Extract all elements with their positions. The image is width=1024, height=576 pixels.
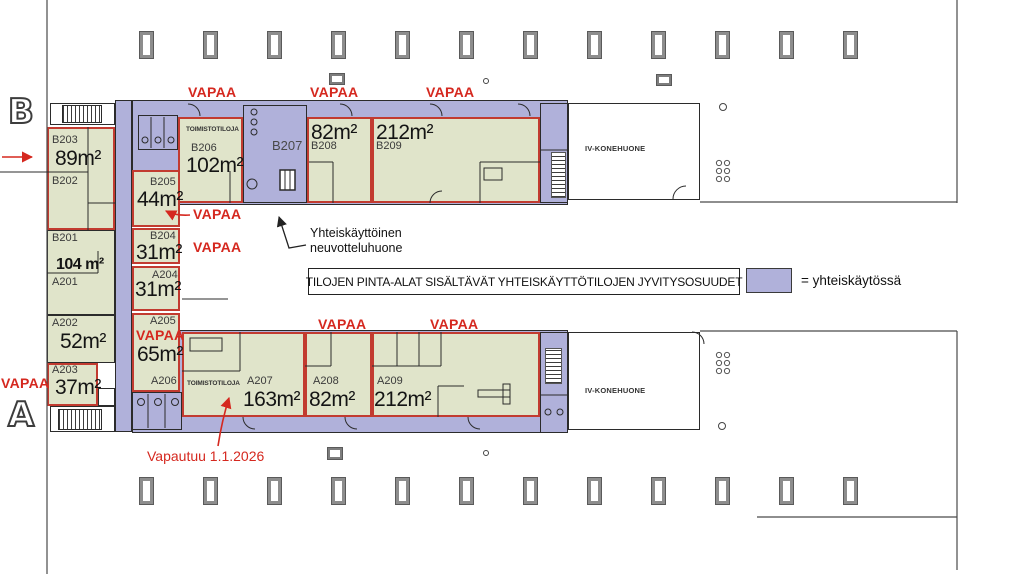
floor-plan: B A B203 89m² B202 B201 104 m² A201 A202…	[0, 0, 1024, 576]
corridor-shared-zone	[115, 100, 132, 432]
vapaa-label-a203: VAPAA	[1, 376, 49, 390]
room-area-a204: 31m²	[135, 279, 181, 300]
room-label-b208: B208	[311, 141, 337, 152]
stair-hatch	[58, 409, 102, 430]
legend-shared-swatch	[746, 268, 792, 293]
site-circle-mark	[483, 450, 489, 456]
room-area-a203: 37m²	[55, 377, 101, 398]
vapaa-label-b204: VAPAA	[193, 240, 241, 254]
room-label-b207: B207	[272, 140, 302, 151]
stair-hatch	[62, 105, 102, 123]
room-label-b203: B203	[52, 135, 78, 146]
room-label-a207: A207	[247, 376, 273, 387]
section-a-label: A	[8, 399, 34, 431]
room-area-a205: 65m²	[137, 344, 183, 365]
site-circle-mark	[719, 103, 727, 111]
section-b-label: B	[8, 96, 34, 128]
stair-hatch	[551, 152, 566, 198]
roof-window	[588, 32, 601, 58]
shared-meeting-room-note: Yhteiskäyttöinen neuvotteluhuone	[310, 226, 402, 255]
room-label-a202: A202	[52, 318, 78, 329]
room-area-b205: 44m²	[137, 189, 183, 210]
vapaa-label-a209: VAPAA	[430, 317, 478, 331]
roof-window	[204, 32, 217, 58]
vapaa-label-b208: VAPAA	[310, 85, 358, 99]
roof-window	[332, 32, 345, 58]
room-label-a206: A206	[151, 376, 177, 387]
room-label-b205: B205	[150, 177, 176, 188]
room-area-a209: 212m²	[374, 389, 431, 410]
legend-shared-label: = yhteiskäytössä	[801, 273, 901, 288]
roof-window	[844, 32, 857, 58]
roof-window-row-bottom	[140, 478, 857, 504]
room-area-b201: 104 m²	[56, 254, 104, 275]
room-label-b206: B206	[191, 143, 217, 154]
vapaa-label-a205: VAPAA	[136, 328, 184, 342]
roof-window	[396, 478, 409, 504]
site-circle-mark	[718, 422, 726, 430]
roof-window	[268, 478, 281, 504]
room-label-a208: A208	[313, 376, 339, 387]
wc-block-top	[138, 115, 178, 150]
room-area-a208: 82m²	[309, 389, 355, 410]
roof-hatch	[328, 448, 342, 459]
vacating-note: Vapautuu 1.1.2026	[147, 448, 264, 464]
room-area-b203: 89m²	[55, 148, 101, 169]
roof-window	[332, 478, 345, 504]
area-info-box: TILOJEN PINTA-ALAT SISÄLTÄVÄT YHTEISKÄYT…	[308, 268, 740, 295]
room-label-a205: A205	[150, 316, 176, 327]
room-label-b202: B202	[52, 176, 78, 187]
roof-window	[588, 478, 601, 504]
roof-hatch	[330, 74, 344, 84]
room-b207-meeting	[243, 105, 307, 203]
roof-window	[780, 478, 793, 504]
vent-grid-marks	[716, 160, 729, 373]
roof-window	[460, 32, 473, 58]
roof-window	[716, 32, 729, 58]
office-space-label-a207: TOIMISTOTILOJA	[187, 380, 240, 387]
office-space-label-b206: TOIMISTOTILOJA	[186, 126, 239, 133]
roof-window	[268, 32, 281, 58]
hvac-label-top: IV-KONEHUONE	[585, 144, 645, 153]
hvac-label-bottom: IV-KONEHUONE	[585, 386, 645, 395]
roof-window	[204, 478, 217, 504]
shared-meeting-room-note-line2: neuvotteluhuone	[310, 241, 402, 256]
roof-window	[396, 32, 409, 58]
roof-window-row-top	[140, 32, 857, 58]
roof-window	[844, 478, 857, 504]
wc-block-bottom	[132, 392, 182, 430]
room-area-b204: 31m²	[136, 242, 182, 263]
vapaa-label-b205: VAPAA	[193, 207, 241, 221]
roof-window	[716, 478, 729, 504]
vapaa-label-b206: VAPAA	[188, 85, 236, 99]
vapaa-label-a208: VAPAA	[318, 317, 366, 331]
roof-window	[460, 478, 473, 504]
vapaa-label-b209: VAPAA	[426, 85, 474, 99]
roof-window	[140, 32, 153, 58]
roof-window	[652, 32, 665, 58]
room-label-a203: A203	[52, 365, 78, 376]
room-area-b206: 102m²	[186, 155, 243, 176]
meeting-room-arrow	[279, 217, 306, 248]
roof-window	[524, 478, 537, 504]
roof-window	[140, 478, 153, 504]
roof-window	[524, 32, 537, 58]
roof-window	[780, 32, 793, 58]
roof-window	[652, 478, 665, 504]
room-label-b201: B201	[52, 233, 78, 244]
roof-hatch	[657, 75, 671, 85]
room-label-a209: A209	[377, 376, 403, 387]
room-area-a207: 163m²	[243, 389, 300, 410]
shared-meeting-room-note-line1: Yhteiskäyttöinen	[310, 226, 402, 241]
hvac-room-bottom	[568, 332, 700, 430]
stair-hatch	[545, 348, 562, 384]
room-label-b209: B209	[376, 141, 402, 152]
room-label-a201: A201	[52, 277, 78, 288]
site-circle-mark	[483, 78, 489, 84]
room-area-a202: 52m²	[60, 331, 106, 352]
